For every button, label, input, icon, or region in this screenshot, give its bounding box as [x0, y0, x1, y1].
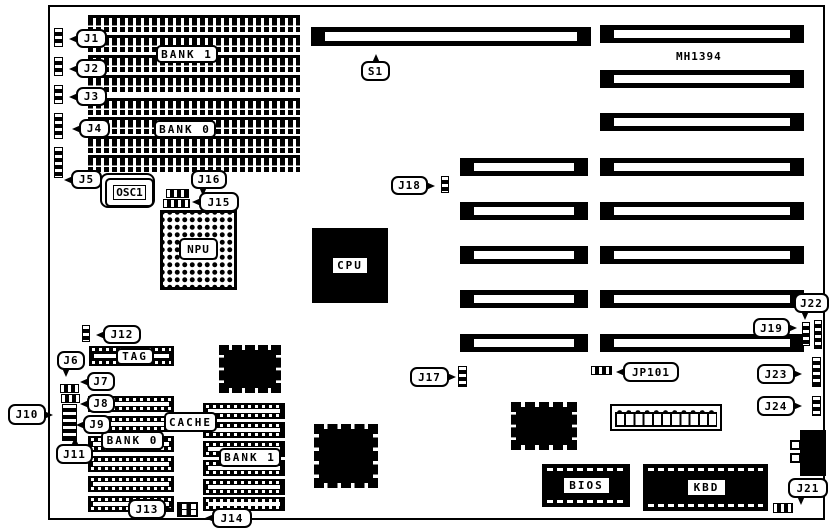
jumper-j1-callout: J1 — [76, 29, 107, 48]
kbd-label: KBD — [688, 480, 725, 495]
jumper-j13-callout: J13 — [128, 499, 166, 519]
simm-socket — [88, 15, 300, 32]
bios-label: BIOS — [564, 478, 609, 493]
qfp-chip-3 — [511, 402, 577, 450]
memory-bank1-label: BANK 1 — [156, 45, 218, 63]
osc1-crystal: OSC1 — [100, 173, 155, 208]
isa-slot — [600, 246, 804, 264]
simm-socket — [88, 136, 300, 153]
jumper-j18-callout: J18 — [391, 176, 428, 195]
jumper-j9-callout: J9 — [83, 415, 111, 434]
cache-bank0-label: BANK 0 — [101, 431, 164, 450]
cache-bank0-chip-row — [88, 456, 174, 472]
jumper-j3-block — [54, 85, 63, 104]
isa-slot — [600, 113, 804, 131]
jumper-j24-callout: J24 — [757, 396, 795, 416]
jumper-j10-callout: J10 — [8, 404, 46, 425]
jumper-j11-callout: J11 — [56, 444, 93, 464]
isa-slot-extension — [460, 246, 588, 264]
isa-slot-extension — [460, 158, 588, 176]
jumper-jp101-block — [591, 366, 612, 375]
slot-s1-callout: S1 — [361, 61, 390, 81]
slot-s1 — [311, 27, 591, 46]
jumper-j16-block — [166, 189, 189, 198]
tag-label: TAG — [116, 348, 154, 365]
board-part-number: MH1394 — [676, 50, 722, 63]
npu-label: NPU — [179, 238, 218, 260]
jumper-j15-callout: J15 — [199, 192, 239, 212]
motherboard-diagram: BANK 1 BANK 0 J1 J2 J3 J4 J5 S1 MH1394 O… — [0, 0, 835, 531]
isa-slot — [600, 158, 804, 176]
cpu-label: CPU — [333, 258, 367, 273]
cache-bank0-chip-row — [88, 476, 174, 492]
jumper-jp101-callout: JP101 — [623, 362, 679, 382]
jumper-j3-callout: J3 — [76, 87, 107, 106]
isa-slot — [600, 202, 804, 220]
jumper-j5-block — [54, 147, 63, 178]
qfp-chip-1 — [219, 345, 281, 393]
jumper-j7-callout: J7 — [87, 372, 115, 391]
jumper-j23-callout: J23 — [757, 364, 795, 384]
jumper-j24-block — [812, 396, 821, 416]
jumper-j6-block — [60, 384, 79, 393]
keyboard-din-tab — [790, 453, 801, 463]
jumper-j17-callout: J17 — [410, 367, 449, 387]
keyboard-din-tab — [790, 440, 801, 450]
jumper-j14-callout: J14 — [212, 508, 252, 528]
isa-slot-extension — [460, 202, 588, 220]
simm-socket — [88, 75, 300, 92]
jumper-j19-block — [802, 322, 810, 346]
isa-slot — [600, 70, 804, 88]
qfp-chip-2 — [314, 424, 378, 488]
jumper-j15-block — [163, 199, 190, 208]
jumper-j6-callout: J6 — [57, 351, 85, 370]
jumper-j8-j11-block — [62, 404, 77, 441]
isa-slot — [600, 290, 804, 308]
jumper-j21-block — [773, 503, 793, 513]
cache-bank1-chip-row — [203, 479, 285, 495]
jumper-j22-block — [814, 320, 822, 349]
memory-bank0-label: BANK 0 — [154, 120, 216, 138]
simm-socket — [88, 98, 300, 115]
jumper-j19-callout: J19 — [753, 318, 790, 338]
cache-label: CACHE — [164, 412, 217, 432]
keyboard-din-connector — [800, 430, 826, 476]
jumper-j4-block — [54, 113, 63, 139]
simm-socket — [88, 155, 300, 172]
jumper-j8-callout: J8 — [87, 394, 115, 413]
osc1-label: OSC1 — [113, 185, 146, 200]
jumper-j12-callout: J12 — [103, 325, 141, 344]
jumper-j17-block — [458, 366, 467, 387]
jumper-j4-callout: J4 — [79, 119, 110, 138]
isa-slot — [600, 25, 804, 43]
jumper-j5-callout: J5 — [71, 170, 102, 189]
power-connector — [610, 404, 722, 431]
jumper-j18-block — [441, 176, 449, 193]
jumper-j23-block — [812, 357, 821, 387]
isa-slot-extension — [460, 290, 588, 308]
jumper-j2-callout: J2 — [76, 59, 107, 78]
jumper-j16-callout: J16 — [191, 170, 227, 189]
jumper-j1-block — [54, 28, 63, 47]
jumper-j21-callout: J21 — [788, 478, 828, 498]
jumper-j13-j14-block — [177, 502, 198, 517]
cache-bank1-label: BANK 1 — [219, 448, 281, 467]
jumper-j2-block — [54, 57, 63, 76]
jumper-j12-block — [82, 325, 90, 342]
isa-slot-extension — [460, 334, 588, 352]
jumper-j7-block — [61, 394, 80, 403]
jumper-j22-callout: J22 — [794, 293, 829, 313]
